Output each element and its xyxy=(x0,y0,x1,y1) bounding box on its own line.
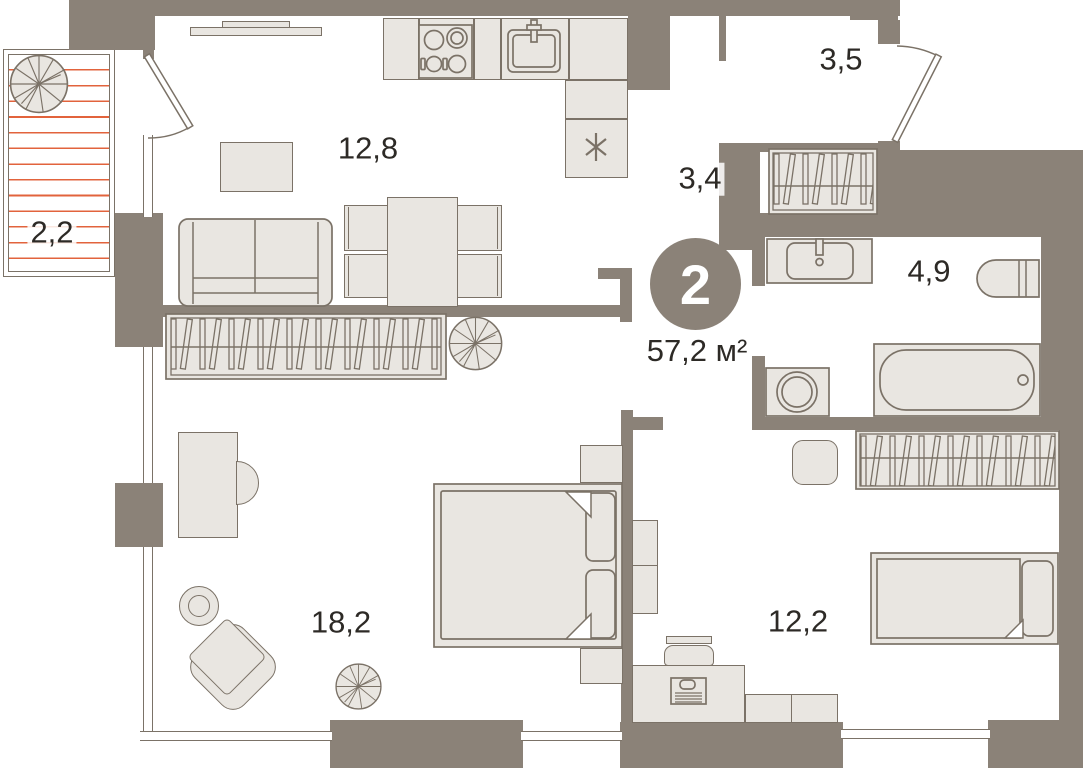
sofa xyxy=(178,218,334,308)
counter-divider xyxy=(566,118,627,120)
sink-icon xyxy=(500,18,568,76)
wall-segment xyxy=(877,150,1083,237)
bathroom-sink-icon xyxy=(766,238,874,284)
cabinet xyxy=(632,520,658,566)
window xyxy=(521,731,622,741)
wall-segment xyxy=(598,268,620,279)
window xyxy=(841,729,990,739)
entry-door-icon xyxy=(892,46,941,142)
plant-icon xyxy=(447,315,504,372)
wall-segment xyxy=(862,417,1041,430)
wardrobe-icon xyxy=(768,148,878,215)
window xyxy=(140,731,332,741)
wall-segment xyxy=(1059,430,1083,768)
stove-icon xyxy=(418,23,474,80)
room-label-bathroom: 4,9 xyxy=(904,256,953,289)
office-chair-back xyxy=(666,636,712,644)
cabinet xyxy=(791,694,838,723)
bathtub-icon xyxy=(873,343,1041,417)
fridge-icon xyxy=(582,130,610,164)
wall-segment xyxy=(752,237,765,286)
cabinet xyxy=(745,694,793,723)
window xyxy=(143,547,153,732)
wall-segment xyxy=(719,16,726,61)
total-area-label: 57,2 м² xyxy=(647,333,748,369)
washing-machine-icon xyxy=(765,367,831,418)
laptop-icon xyxy=(670,677,708,706)
wall-segment xyxy=(143,49,154,59)
wardrobe-icon xyxy=(855,430,1060,490)
floor-plan: 2,2 12,8 3,4 3,5 4,9 18,2 12,2 2 57,2 м² xyxy=(0,0,1083,768)
wall-segment xyxy=(850,0,898,20)
rooms-count-badge: 2 xyxy=(650,238,741,330)
wall-segment xyxy=(330,720,523,768)
double-bed xyxy=(433,483,624,649)
wall-segment xyxy=(620,722,843,768)
desk-chair xyxy=(236,461,259,505)
room-label-living: 12,8 xyxy=(335,133,401,166)
room-label-hallway: 3,4 xyxy=(675,163,724,196)
side-table-top xyxy=(188,595,210,617)
wall-segment xyxy=(752,417,862,430)
wall-segment xyxy=(758,213,878,237)
toilet-icon xyxy=(975,258,1042,299)
wall-segment xyxy=(719,143,760,250)
desk xyxy=(178,432,238,538)
dining-chair xyxy=(457,205,502,251)
wall-segment xyxy=(628,16,670,90)
coffee-table xyxy=(220,142,293,192)
plant-icon xyxy=(334,662,383,711)
office-chair-seat xyxy=(664,645,714,666)
balcony-door-icon xyxy=(144,54,192,138)
single-bed xyxy=(870,552,1060,646)
wardrobe-icon xyxy=(165,313,447,380)
plant-icon xyxy=(8,53,70,115)
wall-segment xyxy=(620,268,632,322)
cabinet xyxy=(632,565,658,614)
wall-segment xyxy=(1041,237,1083,430)
counter-divider xyxy=(568,19,570,79)
room-label-balcony: 2,2 xyxy=(27,217,76,250)
room-label-bedroom: 18,2 xyxy=(308,607,374,640)
wall-segment xyxy=(633,417,663,430)
nightstand xyxy=(580,648,623,684)
dining-chair xyxy=(344,254,388,298)
wall-segment xyxy=(878,20,900,44)
wall-segment xyxy=(69,0,155,50)
wall-segment xyxy=(988,720,1083,768)
window xyxy=(143,135,153,217)
tv xyxy=(190,27,322,36)
wall-segment xyxy=(115,483,163,547)
dining-table xyxy=(387,197,458,307)
wall-segment xyxy=(154,0,900,16)
nightstand xyxy=(580,445,623,483)
room-label-entry: 3,5 xyxy=(816,44,865,77)
room-label-second-room: 12,2 xyxy=(765,606,831,639)
wall-segment xyxy=(115,213,163,347)
dining-chair xyxy=(457,254,502,298)
window xyxy=(143,347,153,483)
dining-chair xyxy=(344,205,388,251)
pouf xyxy=(792,440,838,485)
